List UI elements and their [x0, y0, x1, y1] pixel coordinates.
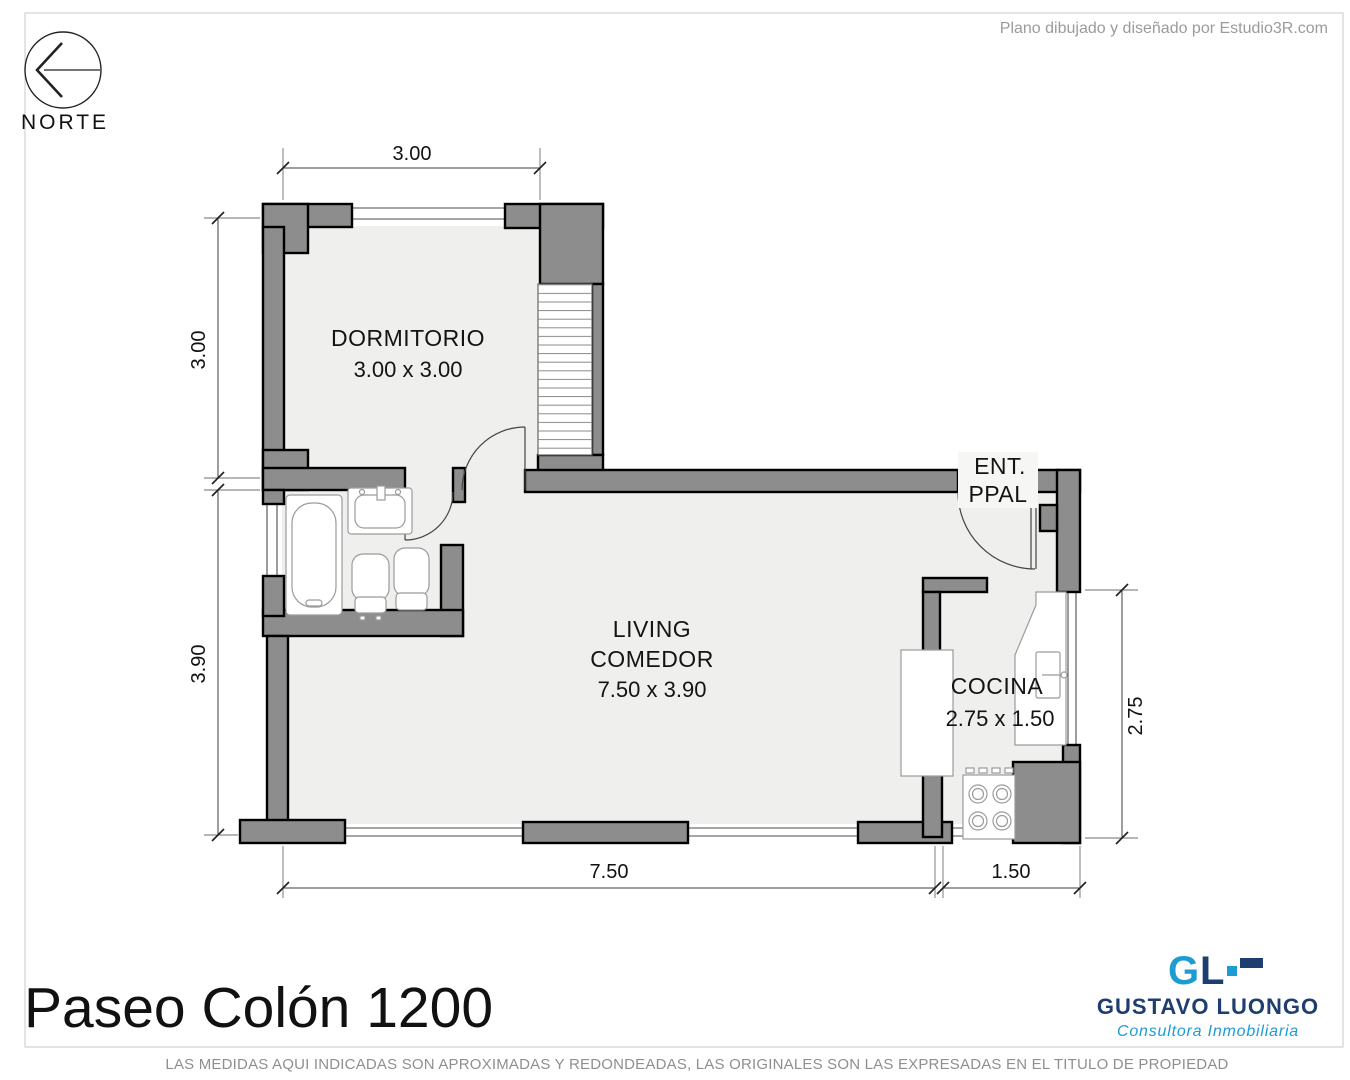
entrance-label-line1: ENT. — [974, 453, 1026, 479]
stove — [963, 768, 1015, 839]
wall-segment — [453, 468, 465, 502]
company-tagline: Consultora Inmobiliaria — [1117, 1023, 1299, 1040]
logo-dash-light — [1227, 966, 1237, 976]
attribution-text: Plano dibujado y diseñado por Estudio3R.… — [1000, 20, 1328, 37]
dim-right-kitchen: 2.75 — [1125, 697, 1147, 736]
logo-letter-g: G — [1168, 949, 1199, 993]
dim-bottom-kitchen: 1.50 — [992, 861, 1031, 883]
wall-segment — [592, 284, 603, 455]
logo-dash-dark — [1240, 958, 1263, 968]
wall-segment — [540, 204, 603, 284]
wall-segment — [923, 775, 942, 837]
wall-segment — [525, 470, 958, 492]
room-label-living: LIVING — [613, 616, 691, 642]
bathtub — [286, 495, 342, 615]
room-size-living: 7.50 x 3.90 — [598, 677, 707, 702]
wall-segment — [1013, 762, 1080, 843]
dim-top-width: 3.00 — [393, 143, 432, 165]
wall-segment — [263, 576, 284, 616]
company-name: GUSTAVO LUONGO — [1097, 994, 1319, 1019]
wall-segment — [1040, 505, 1057, 531]
room-label-dormitorio: DORMITORIO — [331, 325, 485, 351]
floor-plan: DORMITORIO 3.00 x 3.00 LIVING COMEDOR 7.… — [188, 143, 1147, 898]
wall-segment — [923, 592, 940, 654]
floor-plan-page: Plano dibujado y diseñado por Estudio3R.… — [0, 0, 1350, 1080]
room-size-cocina: 2.75 x 1.50 — [946, 706, 1055, 731]
floor-plan-canvas: Plano dibujado y diseñado por Estudio3R.… — [0, 0, 1350, 1080]
room-label-comedor: COMEDOR — [590, 646, 714, 672]
dim-left-upper: 3.00 — [188, 331, 210, 370]
bidet — [394, 548, 429, 610]
room-label-cocina: COCINA — [951, 673, 1044, 699]
room-size-dormitorio: 3.00 x 3.00 — [354, 357, 463, 382]
bathroom-sink — [348, 486, 412, 534]
dim-bottom-main: 7.50 — [590, 861, 629, 883]
company-logo: G L GUSTAVO LUONGO Consultora Inmobiliar… — [1097, 949, 1319, 1040]
compass-label: NORTE — [21, 111, 109, 134]
wall-segment — [923, 578, 987, 592]
wall-segment — [523, 822, 688, 843]
north-compass-icon — [25, 32, 101, 108]
wall-segment — [267, 636, 288, 822]
wall-segment — [1057, 470, 1080, 592]
page-title: Paseo Colón 1200 — [24, 976, 493, 1040]
toilet — [352, 554, 389, 620]
entrance-label-line2: PPAL — [968, 481, 1027, 507]
wall-segment — [263, 490, 284, 504]
wall-segment — [240, 820, 345, 843]
closet-hatch — [538, 284, 592, 455]
logo-letter-l: L — [1200, 949, 1224, 993]
disclaimer-text: LAS MEDIDAS AQUI INDICADAS SON APROXIMAD… — [165, 1056, 1228, 1073]
dim-left-lower: 3.90 — [188, 645, 210, 684]
